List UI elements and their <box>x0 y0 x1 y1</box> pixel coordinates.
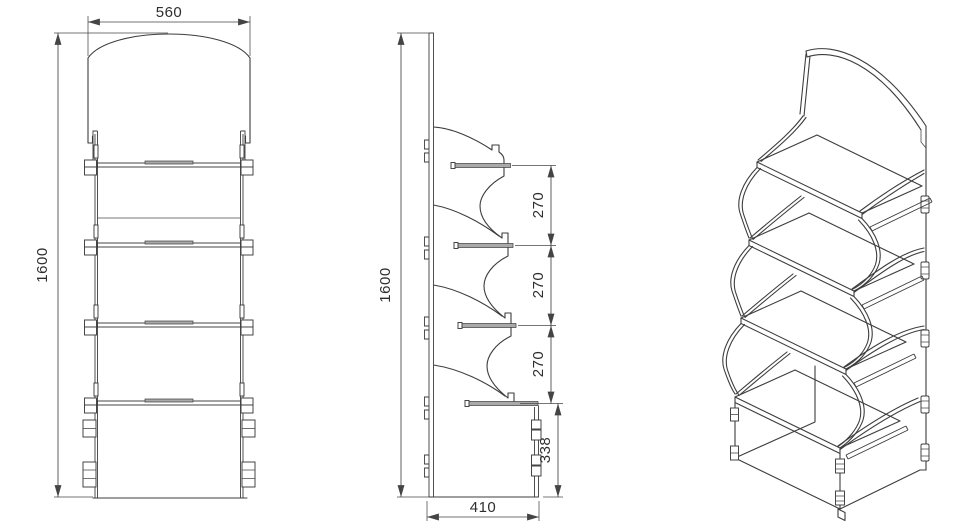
front-dimensions: 560 1600 <box>34 4 250 497</box>
isometric-view <box>723 49 932 521</box>
dim-front-width: 560 <box>156 4 183 21</box>
side-view: 1600 270 270 270 338 410 <box>377 33 563 521</box>
shelf-1-front <box>85 145 254 175</box>
arch-header <box>88 34 250 143</box>
base-side <box>429 406 541 498</box>
iso-header <box>800 49 926 470</box>
iso-shelf-3 <box>741 274 924 387</box>
back-panel-edge <box>425 33 434 497</box>
iso-left-scallop-2 <box>731 246 753 317</box>
iso-left-scallop-1 <box>739 168 761 239</box>
iso-left-scallop-3 <box>723 324 745 395</box>
dim-spacing-top: 270 <box>530 192 547 219</box>
shelf-4-front <box>85 383 254 413</box>
dim-side-height: 1600 <box>377 267 394 302</box>
dim-spacing-mid: 270 <box>530 272 547 299</box>
front-view: 560 1600 <box>34 4 255 498</box>
dim-front-height: 1600 <box>34 247 51 282</box>
technical-drawing: 560 1600 <box>0 0 971 526</box>
shelf-3-front <box>85 305 254 335</box>
base-front <box>83 420 255 498</box>
iso-shelf-4 <box>735 352 920 459</box>
iso-base <box>731 366 927 521</box>
drawing-canvas: 560 1600 <box>0 0 971 526</box>
dim-base-height: 338 <box>537 437 554 464</box>
side-dimensions: 1600 270 270 270 338 410 <box>377 33 563 521</box>
shelf-2-front <box>85 225 254 255</box>
shelf-brackets-profile <box>434 127 539 407</box>
dim-base-depth: 410 <box>470 499 497 516</box>
dim-spacing-bottom: 270 <box>530 351 547 378</box>
iso-back-edge-clips <box>921 196 929 461</box>
